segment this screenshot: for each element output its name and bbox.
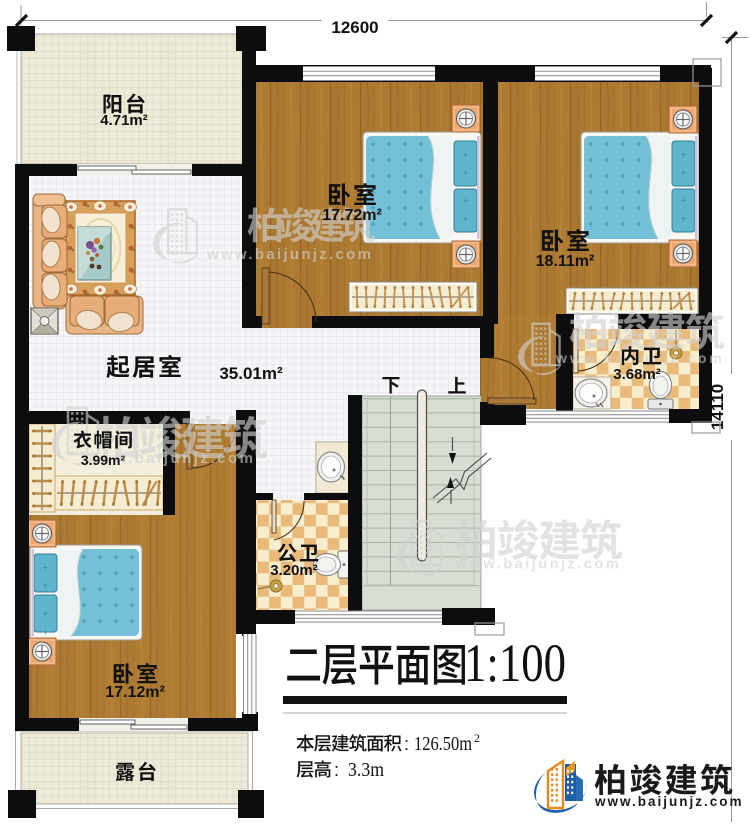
svg-text::: : [404,734,409,754]
svg-text:18.11m²: 18.11m² [536,253,595,270]
svg-text:3.68m²: 3.68m² [613,366,661,383]
svg-text:3.99m²: 3.99m² [81,452,126,468]
svg-text:126.50m: 126.50m [414,733,472,755]
svg-text:17.12m²: 17.12m² [105,684,165,701]
svg-text:www.baijunjz.com: www.baijunjz.com [206,246,373,263]
svg-text:www.baijunjz.com: www.baijunjz.com [455,557,621,573]
svg-text:1:100: 1:100 [464,633,566,693]
svg-text:3.20m²: 3.20m² [270,562,318,579]
svg-text:www.baijunjz.com: www.baijunjz.com [555,350,725,366]
svg-text:3.3m: 3.3m [348,759,384,781]
svg-text:12600: 12600 [331,18,378,37]
svg-text:4.71m²: 4.71m² [100,112,148,129]
svg-text::: : [334,760,339,780]
svg-text:35.01m²: 35.01m² [219,364,283,383]
svg-text:17.72m²: 17.72m² [322,207,382,224]
svg-text:www.baijunjz.com: www.baijunjz.com [594,794,744,809]
svg-text:2: 2 [474,731,480,745]
